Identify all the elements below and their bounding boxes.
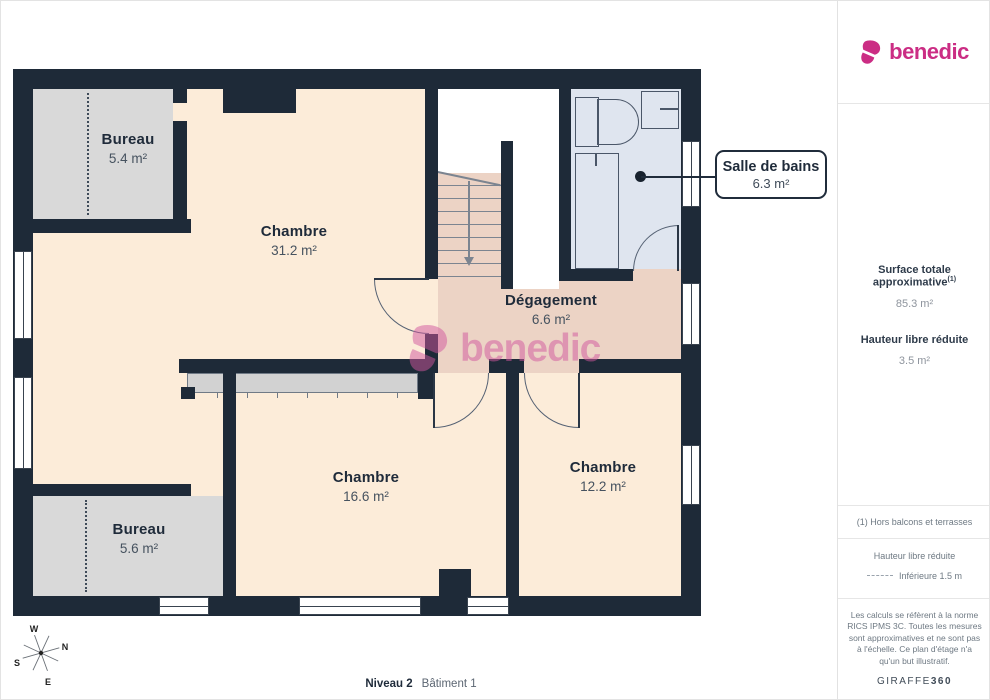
- compass: W N S E: [7, 613, 79, 691]
- room-area: 16.6 m²: [286, 489, 446, 504]
- benedic-logo-icon: [860, 40, 882, 65]
- door-leaf: [374, 278, 429, 280]
- room-name: Bureau: [48, 131, 208, 148]
- wall-segment: [559, 89, 571, 281]
- wall-segment: [506, 359, 519, 596]
- wall-segment: [223, 359, 236, 596]
- building-label: Bâtiment 1: [422, 678, 477, 690]
- door-leaf: [433, 373, 435, 428]
- dashed-line-icon: [867, 575, 893, 577]
- compass-s: S: [14, 658, 20, 668]
- door-leaf: [578, 373, 580, 428]
- legend-title: Hauteur libre réduite: [838, 551, 990, 561]
- room-name: Bureau: [59, 521, 219, 538]
- giraffe360-credit: GIRAFFE360: [846, 675, 983, 689]
- reduced-height-title: Hauteur libre réduite: [838, 334, 990, 346]
- chimney-block: [439, 569, 471, 596]
- wall-segment: [418, 373, 434, 399]
- surface-total-title-text: Surface totale approximative: [873, 264, 951, 289]
- compass-n: N: [62, 642, 69, 652]
- sink-fixture-line: [660, 108, 678, 110]
- room-area: 5.6 m²: [59, 541, 219, 556]
- compass-w: W: [30, 624, 39, 634]
- window: [14, 251, 32, 339]
- room-area: 6.3 m²: [753, 176, 790, 191]
- wall-segment: [13, 69, 701, 89]
- watermark: benedic: [407, 325, 600, 373]
- legend-value: Inférieure 1.5 m: [899, 571, 962, 581]
- callout-leader-line: [641, 176, 717, 178]
- credit-suffix: 360: [931, 676, 952, 687]
- floor-plan-page: Bureau 5.4 m² Chambre 31.2 m² Dégagement…: [0, 0, 990, 700]
- legend: Hauteur libre réduite Inférieure 1.5 m: [838, 539, 990, 599]
- wall-segment: [173, 89, 187, 103]
- window: [159, 597, 209, 615]
- room-label-chambre-16: Chambre 16.6 m²: [286, 469, 446, 504]
- shower-fixture-line: [595, 153, 597, 166]
- window: [682, 141, 700, 207]
- stairs-arrow-head: [464, 257, 474, 266]
- info-sidebar: benedic Surface totale approximative(1) …: [837, 1, 990, 700]
- disclaimer-block: Les calculs se réfèrent à la norme RICS …: [838, 599, 990, 689]
- footnote-text: (1) Hors balcons et terrasses: [857, 517, 973, 527]
- wall-segment: [559, 269, 633, 281]
- brand-header: benedic: [838, 1, 990, 104]
- wall-segment: [501, 141, 513, 289]
- wall-segment: [181, 387, 195, 399]
- closet-hatching: [187, 392, 418, 398]
- closet: [187, 373, 418, 393]
- stairs-arrow: [468, 181, 470, 259]
- brand-name: benedic: [889, 39, 969, 65]
- footnote: (1) Hors balcons et terrasses: [838, 506, 990, 539]
- wall-segment: [223, 89, 296, 113]
- room-name: Salle de bains: [723, 159, 820, 175]
- window: [14, 377, 32, 469]
- room-area: 12.2 m²: [523, 479, 683, 494]
- door-leaf: [677, 225, 679, 271]
- window: [467, 597, 509, 615]
- wall-segment: [33, 219, 191, 233]
- window: [682, 445, 700, 505]
- wall-segment: [13, 69, 33, 616]
- room-label-chambre-12: Chambre 12.2 m²: [523, 459, 683, 494]
- room-name: Chambre: [286, 469, 446, 486]
- surface-footnote-marker: (1): [948, 276, 957, 283]
- plan-footer: Niveau 2Bâtiment 1: [301, 678, 541, 690]
- room-label-chambre-grande: Chambre 31.2 m²: [214, 223, 374, 258]
- room-name: Chambre: [214, 223, 374, 240]
- room-name: Chambre: [523, 459, 683, 476]
- legend-row: Inférieure 1.5 m: [838, 571, 990, 581]
- toilet-fixture: [575, 97, 599, 147]
- sink-fixture: [641, 91, 679, 129]
- window: [682, 283, 700, 345]
- room-name: Dégagement: [471, 292, 631, 309]
- surface-total-title: Surface totale approximative(1): [838, 264, 990, 289]
- level-label: Niveau 2: [365, 678, 412, 690]
- wall-segment: [179, 359, 434, 373]
- wall-segment: [33, 484, 191, 496]
- room-label-bureau-top: Bureau 5.4 m²: [48, 131, 208, 166]
- room-label-bureau-bottom: Bureau 5.6 m²: [59, 521, 219, 556]
- benedic-logo-icon: [407, 325, 451, 373]
- disclaimer-text: Les calculs se réfèrent à la norme RICS …: [846, 610, 983, 667]
- bathroom-callout: Salle de bains 6.3 m²: [715, 150, 827, 199]
- surface-summary: Surface totale approximative(1) 85.3 m² …: [838, 104, 990, 506]
- shower-fixture: [575, 153, 619, 269]
- window: [299, 597, 421, 615]
- credit-name: GIRAFFE: [877, 676, 931, 687]
- reduced-height-value: 3.5 m²: [838, 355, 990, 367]
- room-label-degagement: Dégagement 6.6 m²: [471, 292, 631, 327]
- surface-total-value: 85.3 m²: [838, 298, 990, 310]
- wall-segment: [425, 89, 438, 279]
- watermark-text: benedic: [460, 327, 600, 371]
- room-area: 5.4 m²: [48, 151, 208, 166]
- compass-e: E: [45, 677, 51, 687]
- room-area: 31.2 m²: [214, 243, 374, 258]
- stairwell-void: [513, 89, 559, 289]
